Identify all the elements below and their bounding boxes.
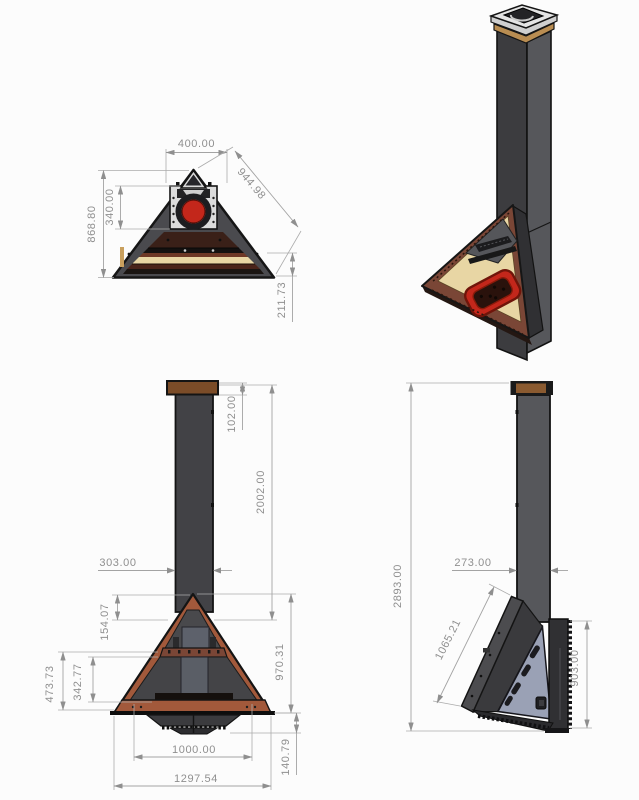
side-bracket-inner <box>539 700 544 706</box>
dim-label: 273.00 <box>454 557 491 569</box>
dim-label: 473.73 <box>44 665 56 702</box>
side-chimney-tab1 <box>516 410 519 414</box>
dim-label: 1000.00 <box>172 744 216 756</box>
top-tab-right <box>208 182 212 186</box>
dim-label: 154.07 <box>99 603 111 640</box>
isometric-view <box>422 5 557 360</box>
front-center-column <box>181 657 208 697</box>
dim-label: 1297.54 <box>174 773 218 785</box>
drawing-canvas: 400.00 944.98 868.80 340.00 <box>0 0 639 800</box>
side-view: 2893.00 273.00 1065.21 903.00 <box>392 381 592 733</box>
dim-label: 211.73 <box>276 282 288 318</box>
dimension-front-chimney-height: 2002.00 <box>214 385 277 620</box>
top-tab-left <box>176 182 180 186</box>
top-flue-opening <box>182 200 205 223</box>
dim-label: 970.31 <box>274 643 286 680</box>
front-chimney-tab1 <box>211 410 214 414</box>
side-chimney-tab2 <box>516 503 519 507</box>
side-back-panel <box>549 619 568 730</box>
dim-label: 2002.00 <box>255 470 267 514</box>
dimension-front-grate-height: 140.79 <box>230 713 301 776</box>
dim-label: 2893.00 <box>392 564 404 608</box>
dimension-side-back-height: 903.00 <box>569 621 592 728</box>
front-hearth-floor <box>155 693 233 700</box>
front-view: 102.00 2002.00 303.00 154.07 <box>44 381 301 790</box>
cad-drawing: 400.00 944.98 868.80 340.00 <box>0 0 639 800</box>
dim-label: 1065.21 <box>433 617 464 662</box>
dim-label: 400.00 <box>178 138 215 150</box>
side-chimney <box>517 395 550 622</box>
front-baffle-right <box>210 637 216 649</box>
side-base-foot <box>545 728 569 733</box>
side-slope-tab <box>483 648 490 653</box>
dim-label: 340.00 <box>104 188 116 225</box>
side-cap-wood <box>516 384 546 394</box>
top-view: 400.00 944.98 868.80 340.00 <box>86 138 301 322</box>
dim-label: 102.00 <box>226 395 238 432</box>
front-flue-window <box>182 627 209 651</box>
front-cap <box>167 381 218 395</box>
dim-label: 140.79 <box>280 738 292 775</box>
dim-label: 903.00 <box>569 649 581 686</box>
dim-label: 342.77 <box>72 663 84 700</box>
dimension-front-cap-height: 102.00 <box>219 383 247 433</box>
dim-label: 303.00 <box>99 557 136 569</box>
dim-label: 868.80 <box>86 205 98 242</box>
front-chimney <box>176 394 214 612</box>
front-baffle-left <box>173 637 179 649</box>
front-chimney-tab2 <box>211 503 214 507</box>
